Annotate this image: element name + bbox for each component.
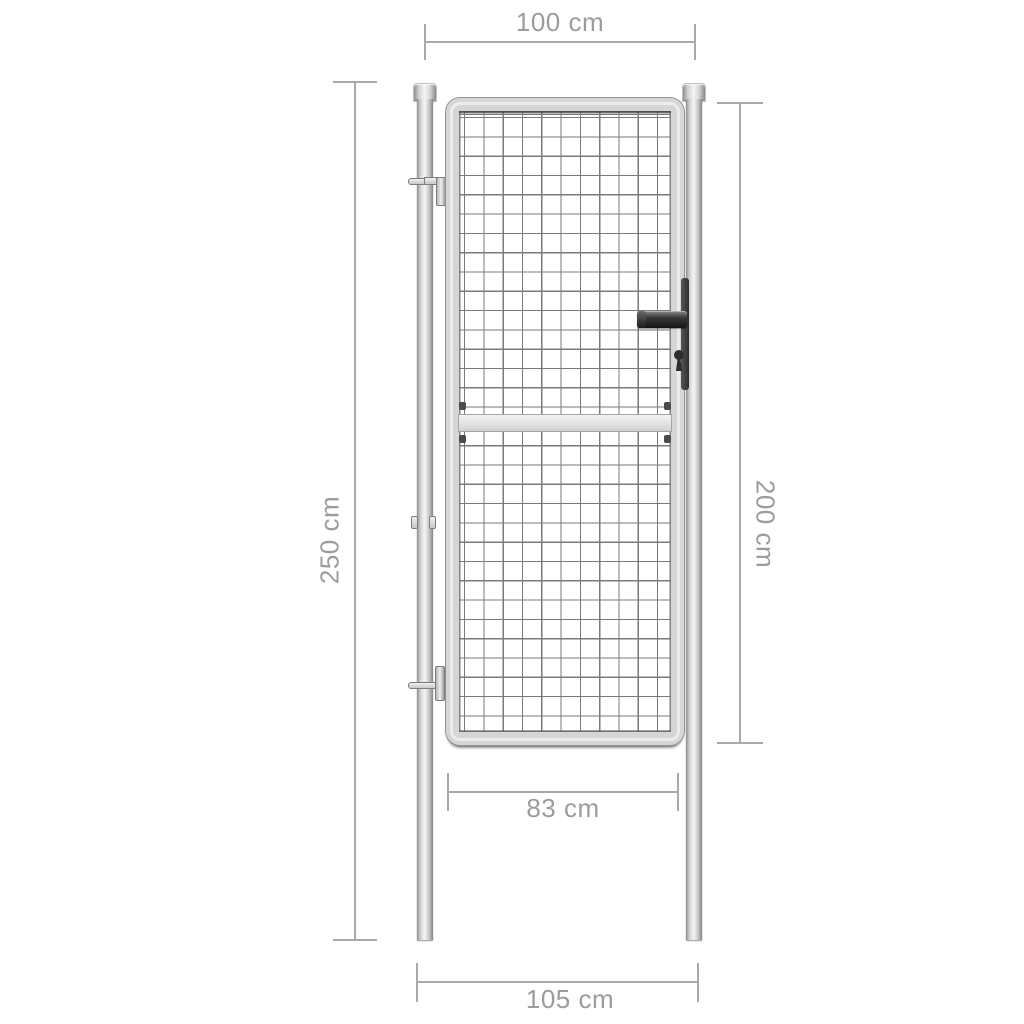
dimension-label-right-height: 200 cm xyxy=(751,480,780,568)
dimension-tick xyxy=(717,102,763,104)
handle-lever-end xyxy=(637,311,646,328)
dimension-tick xyxy=(333,81,377,83)
crossbar xyxy=(458,414,672,432)
top-hinge-sleeve xyxy=(436,177,446,206)
dimension-label-inner-width: 83 cm xyxy=(526,794,599,823)
crossbar-bolt xyxy=(664,435,671,443)
dimension-label-top-width: 100 cm xyxy=(516,8,604,37)
dimension-line xyxy=(425,41,695,43)
dimension-tick xyxy=(416,963,418,1002)
lock-plate xyxy=(681,278,689,390)
dimension-line xyxy=(354,82,356,940)
dimension-label-left-height: 250 cm xyxy=(316,496,345,584)
diagram-canvas: 100 cm 250 cm 200 cm 83 cm 105 cm xyxy=(0,0,1024,1024)
dimension-tick xyxy=(697,963,699,1002)
dimension-tick xyxy=(333,939,377,941)
dimension-label-bottom-width: 105 cm xyxy=(526,985,614,1014)
right-post xyxy=(686,99,702,940)
bottom-hinge-pin xyxy=(408,682,436,689)
post-clamp-right xyxy=(429,516,436,529)
crossbar-bolt xyxy=(459,435,466,443)
dimension-tick xyxy=(424,24,426,60)
crossbar-bolt xyxy=(664,402,671,410)
crossbar-bolt xyxy=(459,402,466,410)
dimension-tick xyxy=(717,742,763,744)
bottom-hinge-sleeve xyxy=(435,666,445,701)
dimension-line xyxy=(417,981,699,983)
dimension-tick xyxy=(694,24,696,60)
dimension-tick xyxy=(677,773,679,811)
dimension-line xyxy=(739,103,741,743)
dimension-tick xyxy=(447,773,449,811)
post-clamp-left xyxy=(411,516,418,529)
